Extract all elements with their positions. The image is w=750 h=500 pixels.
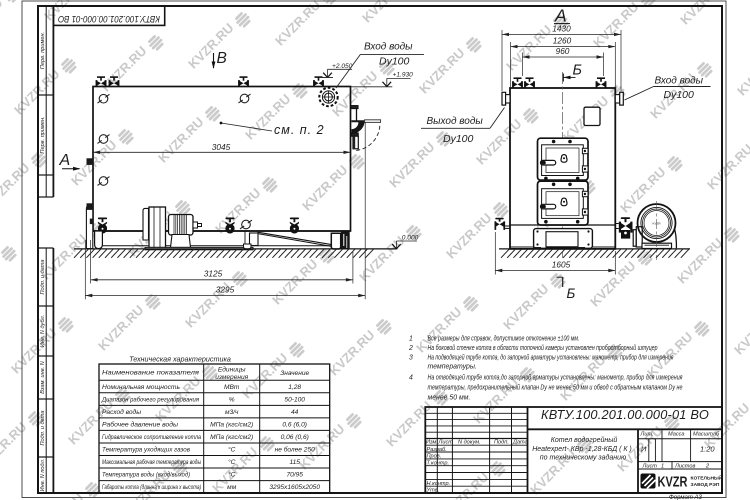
svg-text:N докум.: N докум. xyxy=(458,440,481,446)
svg-text:Единицы: Единицы xyxy=(218,366,246,374)
svg-text:1605: 1605 xyxy=(552,259,571,269)
svg-text:Формат А3: Формат А3 xyxy=(669,495,702,500)
svg-text:МВт: МВт xyxy=(224,384,240,391)
svg-text:°С: °С xyxy=(228,471,236,479)
svg-text:мм: мм xyxy=(227,484,237,491)
svg-text:Температура уходящих газов: Температура уходящих газов xyxy=(102,446,191,454)
svg-text:Взам. инв. N: Взам. инв. N xyxy=(40,360,46,394)
svg-text:Масса: Масса xyxy=(668,432,685,438)
svg-text:Дата: Дата xyxy=(512,440,528,446)
svg-text:Расход воды: Расход воды xyxy=(102,408,141,416)
svg-text:Перв. примен.: Перв. примен. xyxy=(40,32,46,69)
svg-text:1260: 1260 xyxy=(553,36,572,46)
svg-text:960: 960 xyxy=(556,46,570,56)
svg-text:50-100: 50-100 xyxy=(284,397,305,404)
svg-text:Инв. N подл.: Инв. N подл. xyxy=(40,459,46,492)
svg-text:Диапазон рабочего регулировани: Диапазон рабочего регулирования xyxy=(101,396,199,404)
svg-text:Лист: Лист xyxy=(438,440,454,446)
svg-text:Изм.: Изм. xyxy=(426,440,438,446)
svg-text:А: А xyxy=(554,6,567,26)
svg-text:не более 250: не более 250 xyxy=(275,446,316,454)
svg-text:температуры.: температуры. xyxy=(428,364,477,371)
svg-text:А: А xyxy=(59,152,71,169)
svg-text:Подп.: Подп. xyxy=(494,440,509,446)
svg-text:Листов: Листов xyxy=(674,463,695,469)
svg-text:3: 3 xyxy=(409,355,413,362)
svg-text:Выход воды: Выход воды xyxy=(427,116,484,127)
svg-text:Техническая характеристика: Техническая характеристика xyxy=(129,355,231,364)
svg-text:Dу100: Dу100 xyxy=(664,89,695,101)
svg-text:В: В xyxy=(217,50,227,67)
svg-text:менее 50 мм.: менее 50 мм. xyxy=(428,395,471,402)
svg-text:Перв. примен.: Перв. примен. xyxy=(40,116,46,153)
svg-text:Максимальная рабочая температу: Максимальная рабочая температура воды xyxy=(102,458,201,466)
svg-text:Н.контр.: Н.контр. xyxy=(427,481,451,487)
svg-text:Температура воды (вход/выход): Температура воды (вход/выход) xyxy=(102,471,190,479)
svg-text:1:20: 1:20 xyxy=(700,445,715,454)
svg-text:%: % xyxy=(229,397,235,404)
svg-text:Б: Б xyxy=(567,286,576,301)
svg-text:0,06 (0,6): 0,06 (0,6) xyxy=(281,434,309,441)
svg-text:Heatexpert- КВр -1,28-КБД ( К: Heatexpert- КВр -1,28-КБД ( К ) xyxy=(532,446,632,453)
svg-text:115: 115 xyxy=(289,459,300,466)
svg-text:Dy100: Dy100 xyxy=(379,56,410,68)
svg-text:На боковой стенке котла в обла: На боковой стенке котла в области топочн… xyxy=(428,344,658,352)
svg-text:Номинальная мощность: Номинальная мощность xyxy=(102,384,181,391)
svg-text:0,6 (6,0): 0,6 (6,0) xyxy=(282,422,307,429)
svg-text:температуры, предохранительный: температуры, предохранительный клапан Dу… xyxy=(428,384,683,392)
svg-text:Котел водогрейный: Котел водогрейный xyxy=(551,436,618,444)
svg-text:Все размеры для справок, допус: Все размеры для справок, допустимое откл… xyxy=(428,335,580,343)
svg-text:МПа (кгс/см2): МПа (кгс/см2) xyxy=(210,434,253,441)
svg-text:Лит.: Лит. xyxy=(640,432,654,438)
svg-text:Масштаб: Масштаб xyxy=(693,432,720,438)
svg-text:м3/ч: м3/ч xyxy=(225,409,239,416)
svg-text:КВТУ.100.201.00.000-01 ВО: КВТУ.100.201.00.000-01 ВО xyxy=(541,408,709,422)
svg-text:4: 4 xyxy=(409,375,413,382)
svg-text:3295: 3295 xyxy=(216,284,235,294)
svg-text:Лист: Лист xyxy=(642,463,658,469)
svg-text:°С: °С xyxy=(228,458,236,466)
svg-text:На подводящей трубе котла, д: На подводящей трубе котла, до запорной а… xyxy=(428,354,674,362)
svg-text:измерения: измерения xyxy=(215,374,248,381)
svg-text:Инв. N дубл.: Инв. N дубл. xyxy=(40,315,46,347)
svg-text:Подп. и дата: Подп. и дата xyxy=(40,410,46,445)
svg-text:ЗАВОД РЭП: ЗАВОД РЭП xyxy=(691,482,720,488)
svg-text:+1.930: +1.930 xyxy=(393,72,414,79)
svg-text:70/95: 70/95 xyxy=(286,472,303,479)
svg-text:3045: 3045 xyxy=(212,142,231,152)
svg-text:°С: °С xyxy=(228,446,236,454)
svg-text:KVZR: KVZR xyxy=(652,222,661,226)
svg-text:Б: Б xyxy=(573,63,582,79)
svg-text:KVZR: KVZR xyxy=(658,474,688,490)
svg-text:Значение: Значение xyxy=(280,370,309,377)
svg-text:МПа (кгс/см2): МПа (кгс/см2) xyxy=(210,422,253,429)
svg-text:3295х1605х2050: 3295х1605х2050 xyxy=(269,484,320,491)
svg-text:На отводящей трубе котла,до за: На отводящей трубе котла,до запорной арм… xyxy=(428,374,683,382)
svg-text:44: 44 xyxy=(291,409,299,416)
svg-text:по техническому заданию: по техническому заданию xyxy=(540,454,627,462)
svg-text:И: И xyxy=(641,445,647,454)
svg-text:1,28: 1,28 xyxy=(288,384,301,391)
svg-text:Т.контр.: Т.контр. xyxy=(427,461,450,467)
svg-text:Пров.: Пров. xyxy=(427,454,442,460)
svg-text:1: 1 xyxy=(409,336,413,343)
svg-text:Dу100: Dу100 xyxy=(443,133,474,145)
svg-text:Наименование показателя: Наименование показателя xyxy=(102,370,200,377)
svg-text:см. п. 2: см. п. 2 xyxy=(274,123,325,137)
svg-text:Подп. и дата: Подп. и дата xyxy=(40,259,46,294)
svg-text:Гидравлическое сопротивление к: Гидравлическое сопротивление котла xyxy=(102,433,201,441)
svg-text:Разраб.: Разраб. xyxy=(427,447,447,453)
svg-text:1: 1 xyxy=(661,463,664,469)
svg-text:3125: 3125 xyxy=(204,269,223,279)
svg-text:2: 2 xyxy=(408,345,413,352)
svg-text:0.000: 0.000 xyxy=(402,234,419,241)
svg-text:Вход воды: Вход воды xyxy=(364,42,413,53)
svg-text:Вход воды: Вход воды xyxy=(655,75,704,86)
svg-text:Габариты котла (длинна х ширин: Габариты котла (длинна х ширина х высота… xyxy=(102,483,201,491)
svg-text:Рабочее давление воды: Рабочее давление воды xyxy=(102,421,178,429)
svg-text:Утв.: Утв. xyxy=(426,488,440,494)
svg-text:КВТУ.100.201.00.000-01 ВО: КВТУ.100.201.00.000-01 ВО xyxy=(58,14,160,24)
